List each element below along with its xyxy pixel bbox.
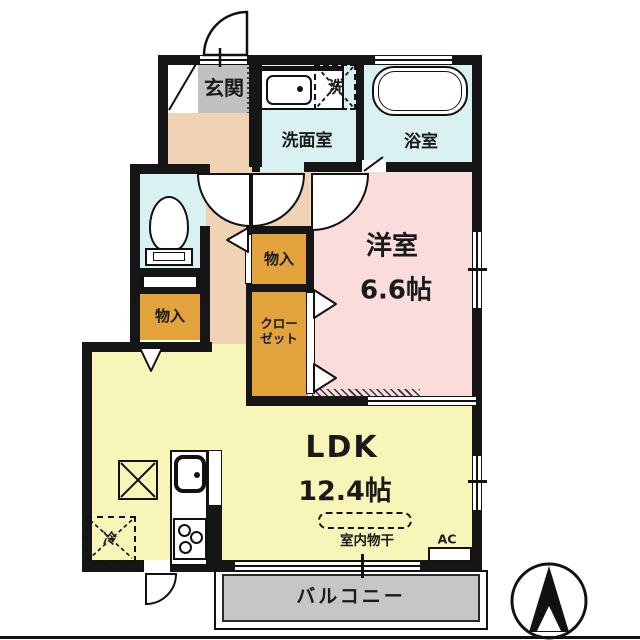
storage-center-label: 物入 — [264, 250, 294, 268]
closet-label-line1: クロー — [260, 316, 298, 331]
western-room-size: 6.6帖 — [360, 275, 432, 306]
floor-hallway-front — [252, 166, 314, 232]
sliding-door-hatch — [312, 389, 420, 396]
shoe-cabinet — [166, 62, 198, 112]
closet-label-line2: ゼット — [260, 331, 298, 346]
back-door-gap — [142, 560, 172, 572]
bathroom-label: 浴室 — [404, 132, 438, 152]
toilet-bowl — [149, 196, 189, 252]
washbasin-faucet-dot — [297, 86, 303, 92]
ac-label: AC — [438, 532, 457, 547]
floorplan-canvas: 玄関 洗面室 浴室 洗 物入 物入 クロー ゼット 洋室 6.6帖 LDK 12… — [0, 0, 640, 640]
stove-burner-2 — [190, 531, 203, 544]
kitchen-side-strip — [208, 450, 222, 506]
indoor-drying-label: 室内物干 — [340, 533, 394, 549]
bath-door-gap — [362, 160, 386, 172]
indoor-drying-pole — [318, 512, 412, 529]
balcony-window-tick — [361, 554, 364, 578]
wall-closet-bottom — [246, 396, 368, 406]
genkan-label: 玄関 — [204, 76, 244, 100]
ldk-label: LDK — [305, 430, 378, 466]
bathroom-window — [375, 55, 452, 65]
wall-closet-divider — [246, 284, 314, 292]
closet-door-strip — [306, 292, 315, 394]
wall-step — [82, 342, 212, 352]
balcony-label: バルコニー — [296, 586, 406, 609]
back-door-arc — [146, 574, 176, 604]
ldk-size: 12.4帖 — [298, 476, 392, 508]
wall-right-mid — [472, 308, 482, 456]
washbasin-sink — [266, 75, 312, 105]
laundry-machine-label: 洗 — [328, 77, 344, 96]
balcony-window — [235, 560, 420, 572]
entrance-door-arc — [204, 12, 247, 55]
western-room-label: 洋室 — [366, 231, 418, 262]
stove-burner-3 — [179, 541, 192, 554]
toilet-storage-door — [140, 276, 200, 288]
entrance-threshold — [200, 55, 247, 65]
western-window-tick — [468, 268, 487, 271]
kitchen-faucet-dot — [194, 472, 200, 478]
bottom-rule — [0, 636, 640, 639]
wall-washroom-door-a — [252, 162, 260, 172]
toilet-tank-inner — [153, 252, 185, 261]
kitchen-sink — [174, 455, 206, 493]
sliding-door-opening — [368, 396, 476, 406]
wall-closet-right-upper — [306, 226, 314, 292]
wall-wash-bath-divider — [356, 57, 364, 167]
storage-center-door — [245, 234, 252, 284]
wall-closet-top — [246, 226, 314, 234]
storage-left-label: 物入 — [155, 307, 185, 325]
compass-north-icon — [512, 564, 586, 638]
ldk-window-tick — [468, 480, 487, 483]
ac-outdoor-unit — [428, 547, 472, 562]
wall-western-top — [306, 162, 482, 172]
hatch-box — [118, 460, 158, 500]
wall-toilet-top — [130, 164, 210, 174]
washroom-label: 洗面室 — [282, 131, 333, 151]
ldk-window — [472, 456, 482, 510]
wall-genkan-left — [158, 55, 168, 167]
refrigerator-label: 冷 — [103, 532, 117, 549]
closet-label: クロー ゼット — [260, 316, 298, 346]
stove-burner-1 — [178, 524, 191, 537]
wall-toilet-left — [130, 164, 140, 352]
wall-right-upper — [472, 55, 482, 232]
wall-kitchen-divider — [208, 506, 222, 566]
bathtub-inner — [378, 71, 462, 111]
